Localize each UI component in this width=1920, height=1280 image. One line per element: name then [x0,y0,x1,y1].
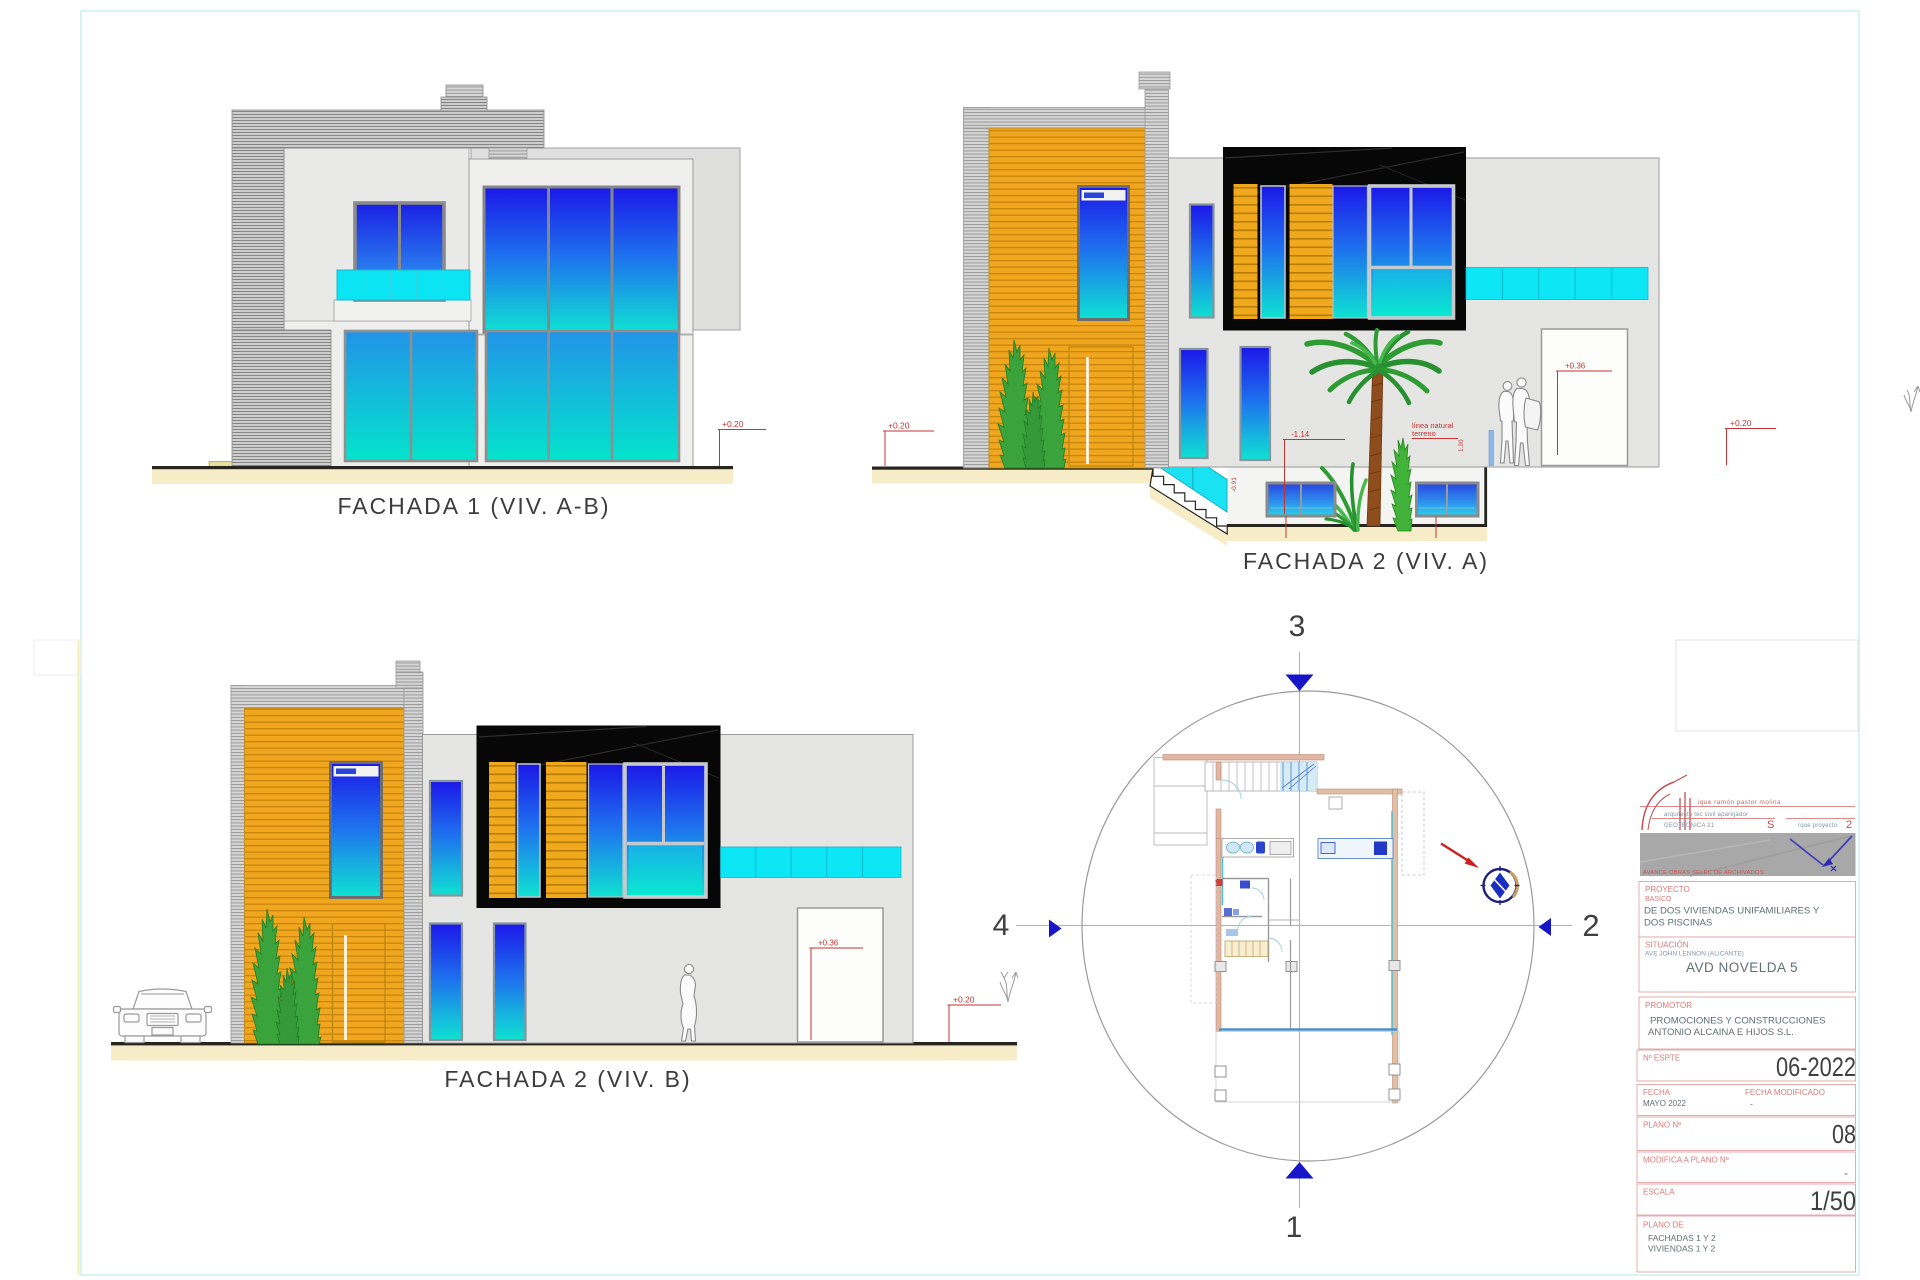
svg-text:08: 08 [1832,1119,1856,1149]
svg-text:FACHADAS 1 Y 2: FACHADAS 1 Y 2 [1648,1233,1716,1243]
svg-text:1.20: 1.20 [1458,439,1465,452]
svg-text:MODIFICA A PLANO Nº: MODIFICA A PLANO Nº [1643,1156,1729,1165]
svg-text:2: 2 [1846,819,1852,831]
svg-text:FECHA: FECHA [1643,1088,1671,1097]
svg-text:arquitecto tec civil aparej: arquitecto tec civil aparejador [1664,812,1748,818]
svg-text:PROYECTO: PROYECTO [1645,885,1690,894]
svg-text:PLANO Nº: PLANO Nº [1643,1121,1681,1130]
svg-text:DOS PISCINAS: DOS PISCINAS [1644,918,1712,929]
svg-text:1: 1 [1286,1211,1303,1244]
svg-text:rque proyecto: rque proyecto [1798,823,1838,829]
svg-text:4: 4 [993,909,1010,942]
svg-text:-1.14: -1.14 [1291,430,1310,439]
svg-text:VIVIENDAS 1 Y 2: VIVIENDAS 1 Y 2 [1648,1244,1716,1254]
svg-text:PLANO DE: PLANO DE [1643,1221,1683,1230]
svg-text:AVANCE OBRAS SELEC DE ARCHIVAD: AVANCE OBRAS SELEC DE ARCHIVADOS [1643,870,1764,876]
svg-text:GEOTECNICA 21: GEOTECNICA 21 [1664,823,1715,829]
svg-text:+0.36: +0.36 [1565,362,1586,371]
svg-text:ique ramón pastor molina: ique ramón pastor molina [1698,799,1781,806]
svg-text:-: - [1750,1099,1753,1109]
svg-text:ESCALA: ESCALA [1643,1188,1675,1197]
svg-text:2: 2 [1582,908,1599,943]
svg-text:DE DOS VIVIENDAS UNIFAMILIARES: DE DOS VIVIENDAS UNIFAMILIARES Y [1644,906,1820,917]
svg-text:+0.20: +0.20 [1730,418,1752,428]
svg-text:PROMOCIONES Y CONSTRUCCIONES: PROMOCIONES Y CONSTRUCCIONES [1650,1016,1826,1027]
svg-text:3: 3 [1289,610,1306,643]
svg-text:+0.20: +0.20 [722,419,744,429]
svg-text:FECHA MODIFICADO: FECHA MODIFICADO [1745,1088,1825,1097]
svg-text:Nº ESPTE: Nº ESPTE [1643,1054,1680,1063]
svg-text:FACHADA 1 (VIV. A-B): FACHADA 1 (VIV. A-B) [337,493,610,519]
svg-text:FACHADA 2 (VIV. A): FACHADA 2 (VIV. A) [1243,548,1489,574]
svg-text:+0.20: +0.20 [888,421,910,431]
svg-text:+0.20: +0.20 [953,995,975,1005]
svg-text:-: - [1844,1166,1848,1180]
svg-text:S: S [1767,819,1774,831]
svg-text:1/50: 1/50 [1810,1186,1856,1216]
svg-text:PROMOTOR: PROMOTOR [1645,1001,1692,1010]
svg-text:AVE JOHN LENNON (ALICANTE): AVE JOHN LENNON (ALICANTE) [1645,951,1744,958]
svg-text:FACHADA 2 (VIV. B): FACHADA 2 (VIV. B) [444,1066,691,1092]
svg-text:06-2022: 06-2022 [1776,1052,1856,1082]
svg-text:terreno: terreno [1412,429,1436,438]
svg-text:-0.91: -0.91 [1231,477,1238,492]
svg-text:AVD NOVELDA 5: AVD NOVELDA 5 [1686,960,1798,975]
svg-text:MAYO 2022: MAYO 2022 [1643,1099,1687,1108]
svg-text:+0.36: +0.36 [818,939,839,948]
svg-text:SITUACIÓN: SITUACIÓN [1645,941,1689,950]
svg-text:ANTONIO ALCAINA E HIJOS S.L.: ANTONIO ALCAINA E HIJOS S.L. [1648,1027,1794,1038]
svg-text:BASICO: BASICO [1645,896,1672,903]
